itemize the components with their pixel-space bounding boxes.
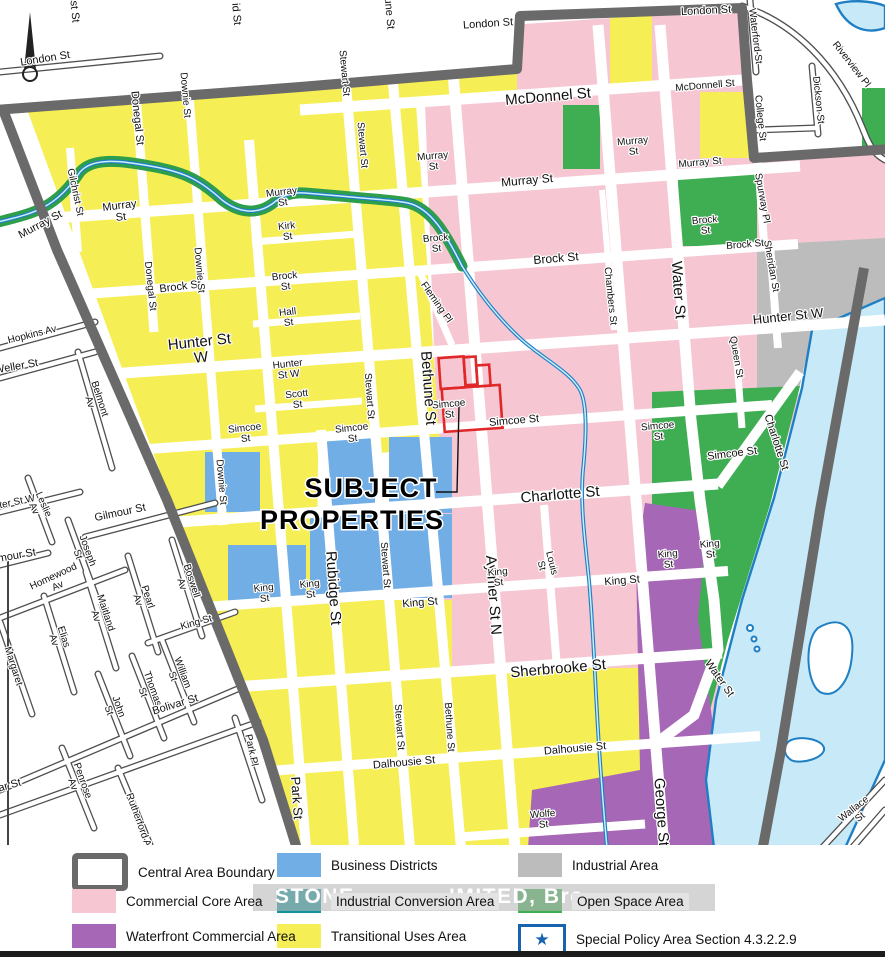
legend-item-special-policy-area-section-4-3-2-2-9: ★Special Policy Area Section 4.3.2.2.9 xyxy=(518,924,797,954)
legend-swatch-pink xyxy=(72,889,116,913)
street-label-bethune-st: Bethune St xyxy=(380,0,397,30)
zoning-map: London StGilchrist Stid StBethune StLond… xyxy=(0,0,885,848)
street-label-id-st: id St xyxy=(229,3,243,26)
star-icon: ★ xyxy=(534,931,549,948)
legend-swatch-gray xyxy=(518,853,562,877)
street-label-rutherford-av: Rutherford Av xyxy=(123,792,154,848)
legend-item-waterfront-commercial-area: Waterfront Commercial Area xyxy=(72,924,296,948)
subject-properties-label-line1: SUBJECT xyxy=(304,473,437,503)
legend-label: Commercial Core Area xyxy=(126,894,263,909)
legend-label: Special Policy Area Section 4.3.2.2.9 xyxy=(576,932,797,947)
street-label-penrose-av: PenroseAv xyxy=(61,761,94,804)
legend-item-business-districts: Business Districts xyxy=(277,853,438,877)
street-label-bolivar-st: Bolivar St xyxy=(0,777,23,802)
subject-properties-label-line2: PROPERTIES xyxy=(260,505,444,535)
legend-label: Waterfront Commercial Area xyxy=(126,929,296,944)
street-label-park-st: Park St xyxy=(288,776,306,820)
street-label-margaret: Margaret xyxy=(2,646,25,688)
legend-item-industrial-area: Industrial Area xyxy=(518,853,658,877)
legend-swatch-blue xyxy=(277,853,321,877)
legend-swatch-boundary xyxy=(72,853,128,891)
legend-label: Transitional Uses Area xyxy=(331,929,466,944)
legend-label: Industrial Conversion Area xyxy=(331,893,499,910)
street-label-london-st: London St xyxy=(463,16,514,31)
street-label-hopkins-av: Hopkins Av xyxy=(7,324,58,347)
street-label-gilchrist-st: Gilchrist St xyxy=(65,0,82,23)
legend-label: Industrial Area xyxy=(572,858,658,873)
legend-item-central-area-boundary: Central Area Boundary xyxy=(72,853,275,891)
zoning-map-page: London StGilchrist Stid StBethune StLond… xyxy=(0,0,885,960)
legend-item-transitional-uses-area: Transitional Uses Area xyxy=(277,924,466,948)
legend-label: Central Area Boundary xyxy=(138,865,275,880)
legend-swatch-purple xyxy=(72,924,116,948)
legend-swatch-special: ★ xyxy=(518,924,566,954)
bottom-rule xyxy=(0,951,885,957)
scan-edge-line xyxy=(7,560,9,848)
legend-label: Business Districts xyxy=(331,858,438,873)
legend: Central Area BoundaryCommercial Core Are… xyxy=(0,845,885,960)
legend-label: Open Space Area xyxy=(572,893,689,910)
legend-item-commercial-core-area: Commercial Core Area xyxy=(72,889,263,913)
